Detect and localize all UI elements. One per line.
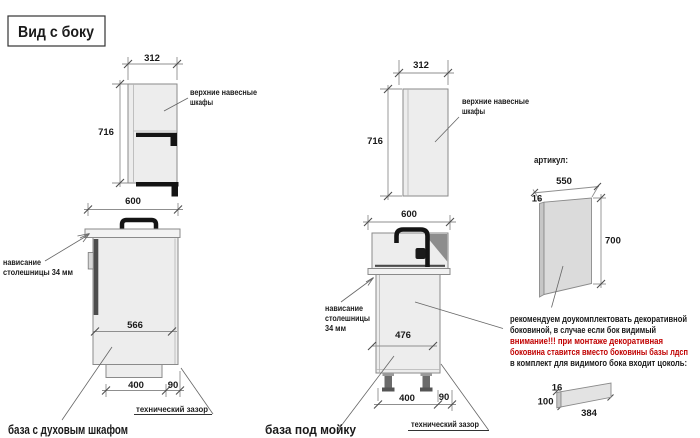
note-line-3-warning: внимание!!! при монтаже декоративная	[510, 336, 663, 346]
upper-cabinet-label-line1: верхние навесные	[190, 87, 257, 97]
overhang-label-line3: 34 мм	[325, 323, 346, 333]
countertop	[368, 269, 450, 275]
handle-profile-bottom-drop	[172, 187, 179, 197]
dim-value: 550	[556, 176, 572, 187]
dim-width-600-mid: 600	[363, 209, 456, 230]
oven-door-front	[94, 239, 99, 315]
panel-edge-face	[540, 202, 545, 297]
dim-value: 476	[395, 330, 411, 341]
legs	[382, 373, 433, 392]
dim-value: 600	[401, 209, 417, 220]
panel-front-face	[544, 198, 592, 295]
handle-profile-bottom	[136, 182, 179, 187]
dim-width-312-mid: 312	[393, 60, 454, 85]
dim-value: 700	[605, 236, 621, 247]
note-line-5: в комплект для видимого бока входит цоко…	[510, 358, 687, 368]
dim-value: 566	[127, 320, 143, 331]
dim-width-312-left: 312	[122, 53, 183, 80]
overhang-label-line1: нависание	[3, 257, 41, 267]
note-line-2: боковиной, в случае если бок видимый	[510, 325, 656, 335]
dim-value: 600	[125, 196, 141, 207]
overhang-callout: нависание столешницы 34 мм	[3, 234, 90, 278]
overhang-label-line1: нависание	[325, 303, 363, 313]
dim-height-716-left: 716	[98, 80, 129, 187]
page-title: Вид с боку	[18, 24, 94, 41]
upper-cabinet-left: 312 716 верхние навесные шкафы	[98, 53, 257, 197]
dim-value: 716	[98, 127, 114, 138]
handle-profile-mid	[136, 133, 177, 137]
note-line-4-warning: боковина ставится вместо боковины базы л…	[510, 347, 688, 357]
plinth-thickness-value: 16	[552, 383, 563, 394]
cabinet-body	[376, 275, 440, 374]
drawing-canvas: Вид с боку 312 716 верхние навесные шкаф	[0, 0, 700, 438]
artikul-header: артикул:	[534, 155, 568, 166]
top-handle-icon	[122, 220, 156, 229]
tech-gap-label: технический зазор	[136, 404, 208, 414]
dim-height-716-mid: 716	[367, 85, 402, 200]
plinth-part-drawing: 16 100 384	[538, 383, 614, 420]
dim-value: 312	[144, 53, 160, 64]
plinth-edge-face	[557, 392, 561, 408]
dim-height-700: 700	[593, 194, 621, 288]
upper-cabinet-label-line2: шкафы	[462, 106, 485, 116]
sink-base-caption: база под мойку	[265, 422, 357, 437]
note-line-1: рекомендуем доукомплектовать декоративно…	[510, 314, 687, 324]
overhang-label-line2: столешницы 34 мм	[3, 267, 73, 277]
plinth-height-value: 100	[538, 397, 554, 408]
plinth-length-value: 384	[581, 408, 598, 419]
dim-value: 716	[367, 136, 383, 147]
dim-width-600-left: 600	[84, 196, 183, 216]
dim-value: 312	[413, 60, 429, 71]
plinth	[106, 365, 162, 378]
overhang-label-line2: столешницы	[325, 313, 370, 323]
sink-base-cabinet: 600 нависание столешницы 34 мм	[265, 209, 503, 437]
cabinet-body	[403, 89, 448, 196]
decor-panel: артикул: 550 16 700	[531, 155, 621, 308]
upper-cabinet-mid: 312 716 верхние навесные шкафы	[367, 60, 529, 200]
dim-value-400: 400	[399, 393, 415, 404]
handle-profile-mid-drop	[171, 137, 178, 146]
dim-value-400: 400	[128, 380, 144, 391]
caption-leader	[338, 356, 394, 430]
cabinet-body	[93, 238, 178, 365]
plinth-front-face	[561, 383, 611, 407]
note-block: рекомендуем доукомплектовать декоративно…	[510, 314, 688, 368]
caption-leader	[62, 347, 112, 420]
kitchen-side-view-drawing: Вид с боку 312 716 верхние навесные шкаф	[0, 0, 700, 438]
dim-value-90: 90	[168, 380, 179, 391]
upper-cabinet-label-line2: шкафы	[190, 97, 213, 107]
countertop	[85, 229, 180, 238]
oven-base-caption: база с духовым шкафом	[8, 422, 128, 437]
title-block: Вид с боку	[8, 16, 105, 46]
oven-handle	[88, 253, 93, 270]
oven-base-cabinet: 600 нависание столешницы 34 мм 566	[3, 196, 213, 437]
tech-gap-label: технический зазор	[411, 419, 479, 429]
dim-value-90: 90	[439, 392, 450, 403]
overhang-callout-mid: нависание столешницы 34 мм	[325, 278, 374, 334]
faucet-lever	[416, 248, 426, 259]
upper-cabinet-label-line1: верхние навесные	[462, 96, 529, 106]
